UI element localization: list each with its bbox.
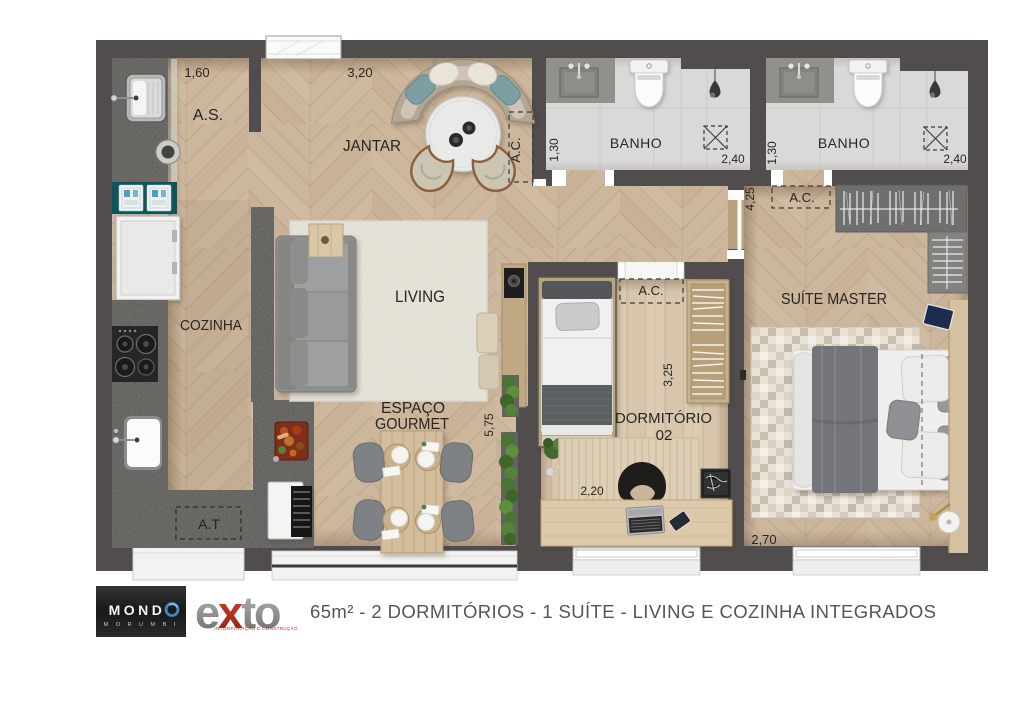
svg-text:1,60: 1,60 (184, 65, 209, 80)
svg-text:ESPAÇO: ESPAÇO (381, 400, 445, 417)
svg-text:LIVING: LIVING (395, 287, 445, 306)
svg-text:MOND: MOND (109, 602, 166, 618)
svg-text:BANHO: BANHO (610, 135, 662, 151)
svg-text:A.C.: A.C. (508, 137, 523, 162)
svg-text:3,20: 3,20 (347, 65, 372, 80)
svg-text:GOURMET: GOURMET (375, 416, 449, 433)
svg-text:2,70: 2,70 (751, 532, 776, 547)
svg-text:BANHO: BANHO (818, 135, 870, 151)
svg-text:2,40: 2,40 (721, 152, 745, 166)
svg-text:JANTAR: JANTAR (343, 138, 401, 155)
svg-text:02: 02 (656, 427, 673, 444)
svg-text:1,30: 1,30 (547, 138, 561, 162)
svg-text:A.C.: A.C. (789, 190, 814, 205)
svg-text:3,25: 3,25 (661, 363, 675, 387)
svg-text:INCORPORAÇÃO E CONSTRUÇÃO: INCORPORAÇÃO E CONSTRUÇÃO (214, 625, 298, 631)
svg-text:SUÍTE MASTER: SUÍTE MASTER (781, 291, 887, 308)
svg-text:A.T: A.T (198, 516, 220, 532)
svg-text:1,30: 1,30 (765, 141, 779, 165)
svg-text:COZINHA: COZINHA (180, 317, 242, 334)
svg-text:5,75: 5,75 (482, 413, 496, 437)
svg-text:A.C.: A.C. (638, 283, 663, 298)
svg-text:2,40: 2,40 (943, 152, 967, 166)
svg-text:65m² - 2 DORMITÓRIOS - 1 SUÍTE: 65m² - 2 DORMITÓRIOS - 1 SUÍTE - LIVING … (310, 601, 936, 622)
svg-text:2,20: 2,20 (580, 484, 604, 498)
svg-text:4,25: 4,25 (743, 187, 757, 211)
svg-text:M O R U M B I: M O R U M B I (104, 622, 179, 628)
svg-text:DORMITÓRIO: DORMITÓRIO (615, 410, 712, 427)
svg-text:A.S.: A.S. (193, 107, 223, 124)
